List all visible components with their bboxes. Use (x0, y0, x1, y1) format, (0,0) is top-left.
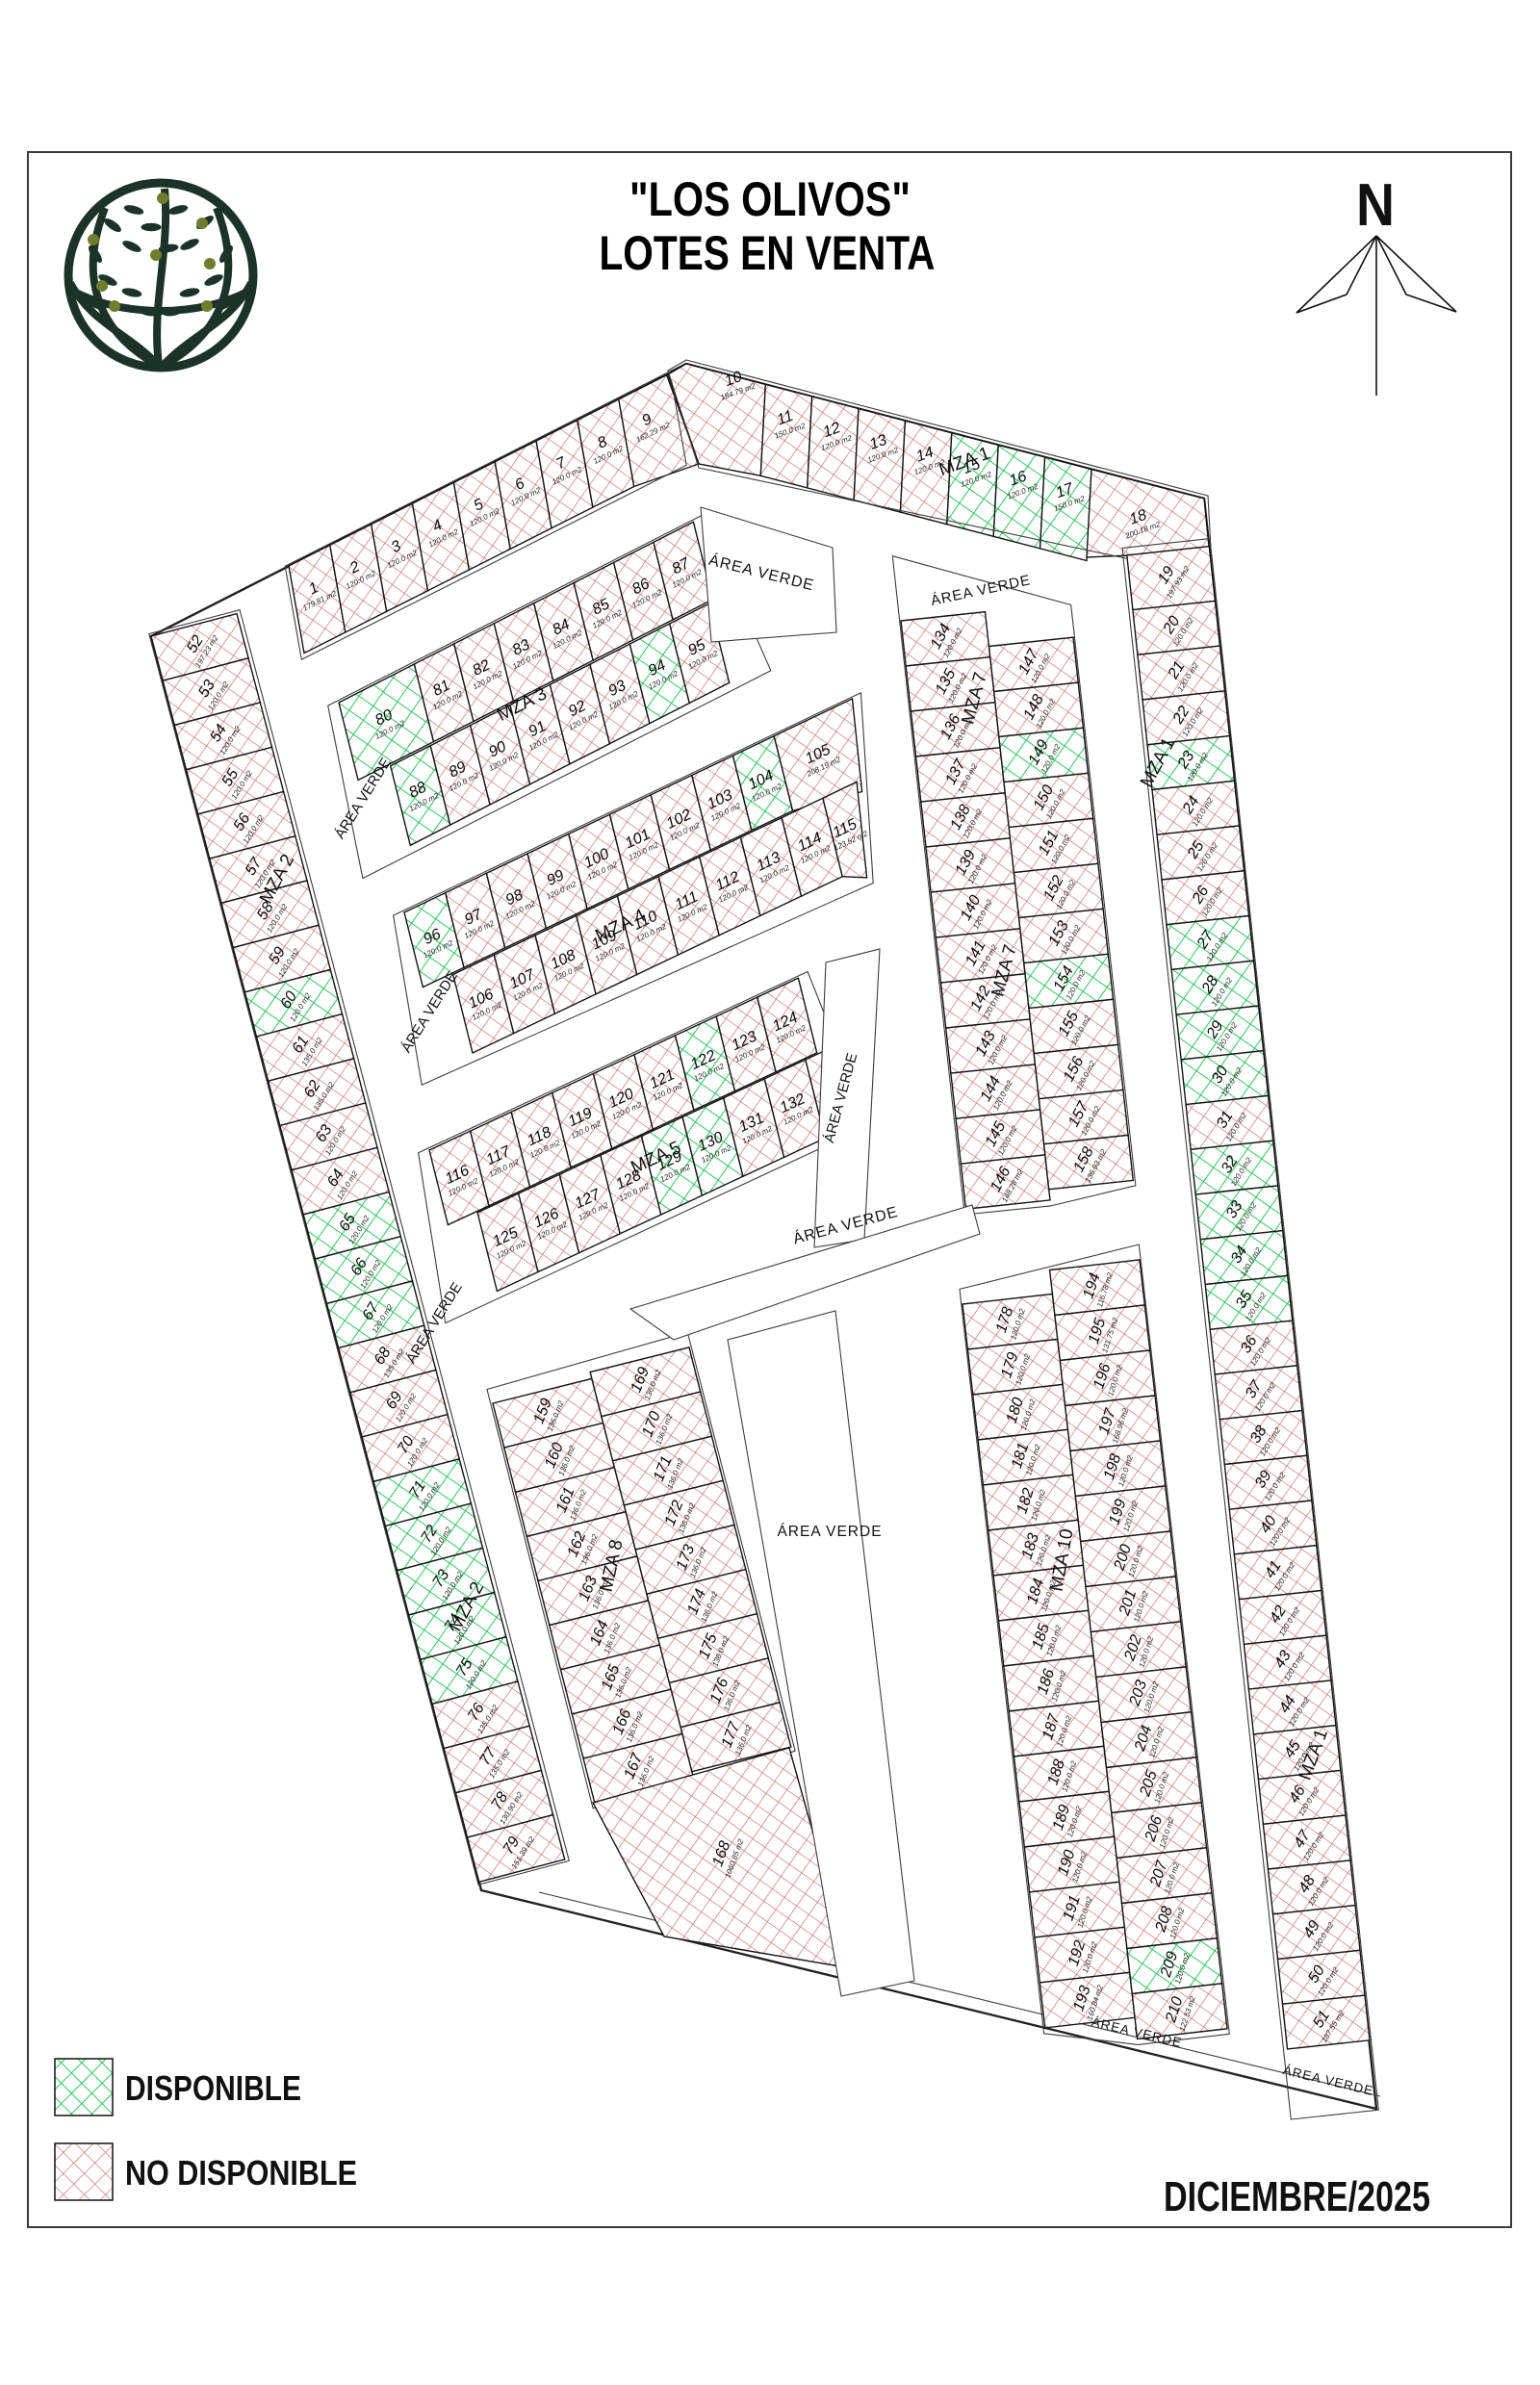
svg-text:N: N (1356, 172, 1395, 239)
svg-text:NO DISPONIBLE: NO DISPONIBLE (125, 2153, 357, 2193)
svg-text:LOTES EN VENTA: LOTES EN VENTA (600, 226, 936, 280)
svg-text:ÁREA VERDE: ÁREA VERDE (777, 1524, 882, 1540)
svg-text:"LOS OLIVOS": "LOS OLIVOS" (629, 172, 911, 226)
svg-text:DICIEMBRE/2025: DICIEMBRE/2025 (1164, 2173, 1430, 2220)
svg-text:DISPONIBLE: DISPONIBLE (125, 2068, 301, 2108)
